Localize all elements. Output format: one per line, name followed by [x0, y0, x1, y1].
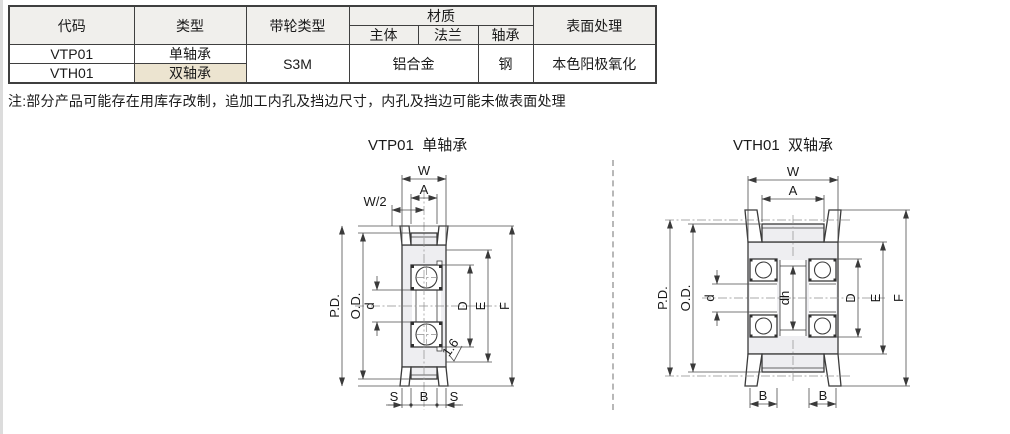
- footnote: 注:部分产品可能存在用库存改制，追加工内孔及挡边尺寸，内孔及挡边可能未做表面处理: [8, 91, 566, 111]
- dim-label-od: O.D.: [678, 285, 693, 312]
- dim-label-dh: dh: [777, 291, 792, 305]
- bearing-upper: [411, 261, 442, 290]
- vth01-drawing: W A P.D. O.D. d dh D E F B B: [640, 160, 950, 420]
- bearing-lower-left: [750, 315, 777, 337]
- dim-label-f: F: [891, 294, 906, 302]
- dim-label-d: d: [362, 302, 377, 309]
- dim-label-a: A: [789, 183, 798, 198]
- cell-code-vth01[interactable]: VTH01: [9, 64, 134, 84]
- dim-label-b2: B: [819, 388, 828, 403]
- dim-label-b1: B: [759, 388, 768, 403]
- cell-type-vth01[interactable]: 双轴承: [134, 64, 246, 84]
- cell-material-body-flange: 铝合金: [349, 45, 478, 84]
- dim-label-s2: S: [450, 389, 459, 404]
- header-surface: 表面处理: [533, 6, 656, 45]
- dim-label-e: E: [473, 301, 488, 310]
- header-material: 材质: [349, 6, 533, 26]
- dim-label-f: F: [497, 302, 512, 310]
- dim-label-big-d: D: [843, 293, 858, 302]
- table-row-vtp01: VTP01 单轴承 S3M 铝合金 钢 本色阳极氧化: [9, 45, 656, 64]
- bearing-upper-left: [750, 259, 777, 281]
- figure-divider: [612, 160, 614, 410]
- dim-label-pd: P.D.: [655, 286, 670, 310]
- dim-label-od: O.D.: [348, 293, 363, 320]
- dim-label-w: W: [787, 164, 800, 179]
- cell-material-bearing: 钢: [478, 45, 533, 84]
- dim-label-s1: S: [390, 389, 399, 404]
- spec-table: 代码 类型 带轮类型 材质 表面处理 主体 法兰 轴承 VTP01 单轴承 S3…: [8, 5, 657, 84]
- vtp01-drawing: W A W/2 P.D. O.D. d D E F S B S 1.6: [330, 160, 560, 420]
- header-code: 代码: [9, 6, 134, 45]
- header-material-bearing: 轴承: [478, 26, 533, 45]
- cell-surface: 本色阳极氧化: [533, 45, 656, 84]
- header-pulley-type: 带轮类型: [246, 6, 349, 45]
- header-type: 类型: [134, 6, 246, 45]
- dim-label-a: A: [420, 182, 429, 197]
- dim-label-d: d: [702, 294, 717, 301]
- dim-label-w-half: W/2: [363, 194, 386, 209]
- cell-pulley-type: S3M: [246, 45, 349, 84]
- bearing-upper-right: [809, 259, 836, 281]
- bearing-lower-right: [809, 315, 836, 337]
- figure-title-vtp01: VTP01 单轴承: [368, 134, 467, 155]
- dim-label-big-d: D: [455, 301, 470, 310]
- header-material-body: 主体: [349, 26, 418, 45]
- dim-label-e: E: [868, 293, 883, 302]
- dim-label-w: W: [418, 163, 431, 178]
- cell-code-vtp01[interactable]: VTP01: [9, 45, 134, 64]
- bearing-lower: [411, 322, 442, 351]
- header-material-flange: 法兰: [418, 26, 478, 45]
- dim-label-b: B: [420, 389, 429, 404]
- page-edge-strip: [0, 0, 3, 434]
- cell-type-vtp01[interactable]: 单轴承: [134, 45, 246, 64]
- figure-title-vth01: VTH01 双轴承: [733, 134, 833, 155]
- dim-label-pd: P.D.: [327, 294, 342, 318]
